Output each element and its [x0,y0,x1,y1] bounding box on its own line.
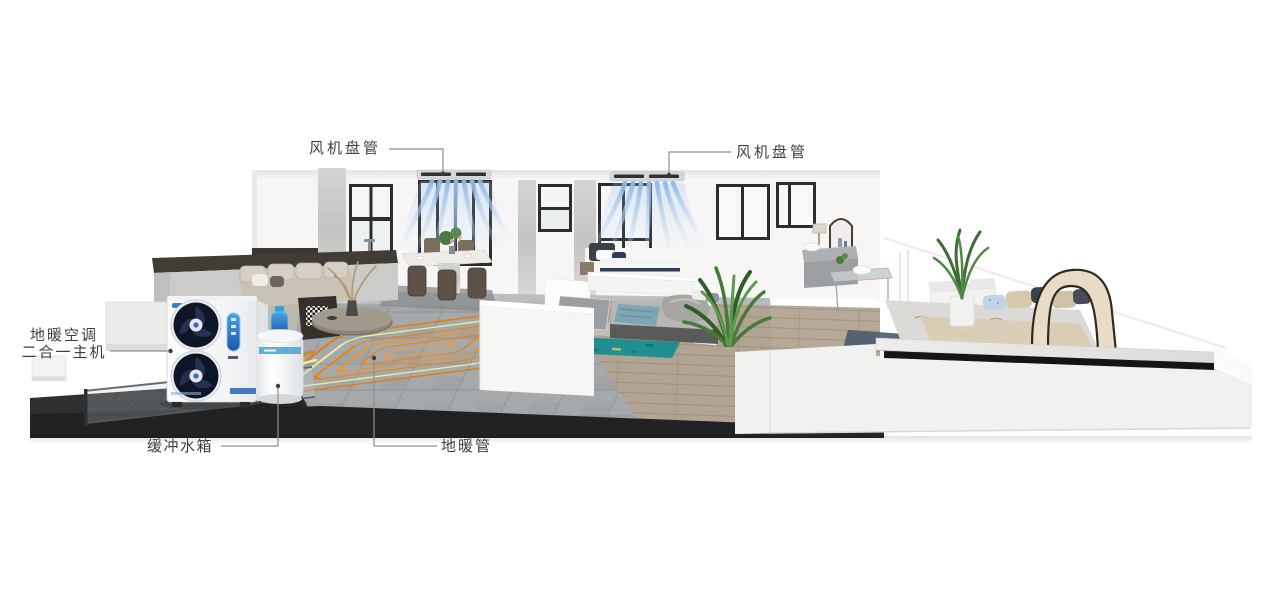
fan-icon [171,300,221,350]
callout-main-unit-line2: 二合一主机 [14,344,114,361]
window-right-2 [776,182,816,228]
callout-floor-pipe: 地暖管 [441,439,492,455]
tv-cabinet [106,302,170,350]
callout-fan-coil-right: 风机盘管 [736,145,808,161]
heat-pump-outdoor-unit [160,296,272,410]
hvac-floor-heating-illustration: 风机盘管 风机盘管 地暖空调 二合一主机 缓冲水箱 地暖管 [0,0,1280,597]
basin-icon [853,266,871,275]
callout-main-unit-line1: 地暖空调 [14,327,114,344]
floral-pillow [983,294,1007,310]
leader-fan-coil-right [669,152,731,173]
dining-chairs [408,266,486,300]
callout-main-unit: 地暖空调 二合一主机 [14,327,114,361]
window-bathroom [538,184,572,232]
table-lamp-icon [813,224,826,233]
window-right-1 [716,184,770,240]
scene-illustration [0,0,1280,597]
leader-fan-coil-left [389,149,443,171]
callout-fan-coil-left: 风机盘管 [309,141,381,157]
front-wall-block-middle [480,300,594,396]
callout-buffer-tank: 缓冲水箱 [147,439,213,455]
front-wall-band-right [735,338,1252,434]
